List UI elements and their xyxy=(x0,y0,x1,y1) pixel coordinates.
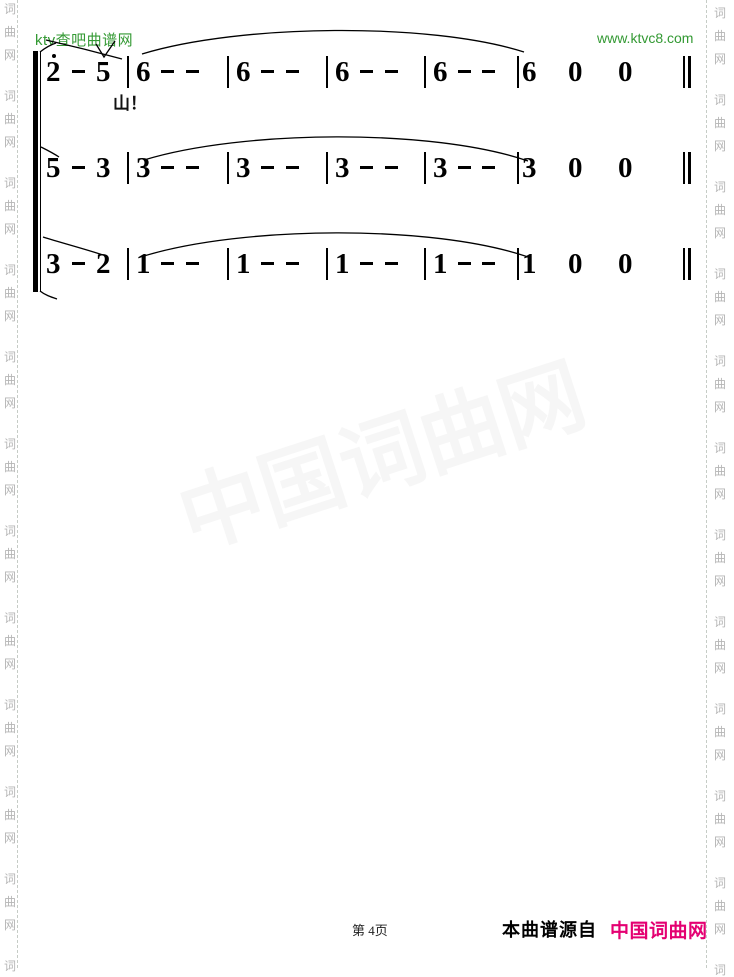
watermark-char: 曲 xyxy=(4,809,16,821)
duration-dash xyxy=(458,262,471,265)
watermark-char: 网 xyxy=(714,575,726,587)
watermark-char: 曲 xyxy=(4,374,16,386)
measure-barline xyxy=(127,152,129,184)
watermark-char: 网 xyxy=(4,310,16,322)
duration-dash xyxy=(186,262,199,265)
watermark-char: 词 xyxy=(714,181,726,193)
note-digit: 1 xyxy=(522,250,537,278)
page-number: 第 4页 xyxy=(352,920,388,939)
site-url-text: www.ktvc8.com xyxy=(597,30,693,46)
duration-dash xyxy=(385,262,398,265)
watermark-char: 词 xyxy=(714,703,726,715)
note-digit: 0 xyxy=(568,58,583,86)
measure-barline xyxy=(326,248,328,280)
watermark-char: 曲 xyxy=(714,117,726,129)
bracket-bottom-hook xyxy=(40,291,57,299)
duration-dash xyxy=(72,166,85,169)
duration-dash xyxy=(482,70,495,73)
watermark-char: 词 xyxy=(4,612,16,624)
measure-barline xyxy=(227,152,229,184)
duration-dash xyxy=(458,70,471,73)
note-digit: 6 xyxy=(335,58,350,86)
duration-dash xyxy=(360,70,373,73)
watermark-char: 曲 xyxy=(714,30,726,42)
watermark-char: 词 xyxy=(4,264,16,276)
watermark-char: 网 xyxy=(4,571,16,583)
watermark-char: 曲 xyxy=(714,204,726,216)
lyric-text: 山！ xyxy=(113,89,147,114)
measure-barline xyxy=(424,152,426,184)
note-digit: 3 xyxy=(433,154,448,182)
watermark-char: 词 xyxy=(714,268,726,280)
watermark-char: 词 xyxy=(714,529,726,541)
duration-dash xyxy=(286,166,299,169)
note-digit: 0 xyxy=(618,250,633,278)
measure-barline xyxy=(127,56,129,88)
watermark-char: 词 xyxy=(714,616,726,628)
note-digit: 0 xyxy=(568,250,583,278)
duration-dash xyxy=(286,262,299,265)
watermark-char: 网 xyxy=(4,397,16,409)
watermark-char: 曲 xyxy=(714,900,726,912)
duration-dash xyxy=(186,166,199,169)
right-watermark-column: 词曲网词曲网词曲网词曲网词曲网词曲网词曲网词曲网词曲网词曲网词曲网词 xyxy=(713,0,729,968)
watermark-char: 词 xyxy=(714,94,726,106)
note-digit: 2 xyxy=(46,58,61,86)
watermark-char: 曲 xyxy=(714,465,726,477)
system-thin-barline xyxy=(40,51,41,292)
watermark-char: 曲 xyxy=(4,896,16,908)
note-digit: 6 xyxy=(136,58,151,86)
measure-barline xyxy=(227,56,229,88)
watermark-char: 词 xyxy=(714,7,726,19)
watermark-char: 曲 xyxy=(4,461,16,473)
watermark-char: 网 xyxy=(714,662,726,674)
note-digit: 1 xyxy=(136,250,151,278)
watermark-char: 网 xyxy=(714,140,726,152)
system-thick-barline xyxy=(33,51,38,292)
watermark-char: 词 xyxy=(4,873,16,885)
left-dashed-rule xyxy=(17,0,18,968)
note-digit: 3 xyxy=(136,154,151,182)
note-digit: 6 xyxy=(236,58,251,86)
watermark-char: 曲 xyxy=(714,726,726,738)
watermark-char: 曲 xyxy=(714,813,726,825)
note-digit: 1 xyxy=(335,250,350,278)
watermark-char: 词 xyxy=(4,3,16,15)
duration-dash xyxy=(186,70,199,73)
watermark-char: 曲 xyxy=(714,639,726,651)
source-label: 本曲谱源自 xyxy=(502,916,597,942)
duration-dash xyxy=(161,166,174,169)
watermark-char: 词 xyxy=(714,355,726,367)
final-barline-thin xyxy=(683,56,685,88)
watermark-char: 曲 xyxy=(4,548,16,560)
ghost-watermark-text: 中国词曲网 xyxy=(162,328,599,573)
note-digit: 0 xyxy=(618,154,633,182)
watermark-char: 网 xyxy=(714,227,726,239)
watermark-char: 词 xyxy=(4,699,16,711)
final-barline-thin xyxy=(683,152,685,184)
watermark-char: 词 xyxy=(4,525,16,537)
duration-dash xyxy=(286,70,299,73)
watermark-char: 网 xyxy=(714,923,726,935)
watermark-char: 曲 xyxy=(714,378,726,390)
duration-dash xyxy=(261,70,274,73)
final-barline-thick xyxy=(688,248,691,280)
measure-barline xyxy=(424,248,426,280)
watermark-char: 网 xyxy=(714,401,726,413)
measure-barline xyxy=(326,152,328,184)
note-digit: 3 xyxy=(236,154,251,182)
note-digit: 5 xyxy=(96,58,111,86)
watermark-char: 曲 xyxy=(4,26,16,38)
watermark-char: 词 xyxy=(714,442,726,454)
measure-barline xyxy=(517,248,519,280)
watermark-char: 曲 xyxy=(714,291,726,303)
watermark-char: 网 xyxy=(4,484,16,496)
watermark-char: 词 xyxy=(4,438,16,450)
note-digit: 0 xyxy=(568,154,583,182)
duration-dash xyxy=(360,166,373,169)
watermark-char: 曲 xyxy=(714,552,726,564)
note-digit: 3 xyxy=(96,154,111,182)
note-digit: 6 xyxy=(433,58,448,86)
octave-dot xyxy=(52,54,56,58)
duration-dash xyxy=(72,262,85,265)
duration-dash xyxy=(385,166,398,169)
brand-link: 中国词曲网 xyxy=(610,916,708,943)
watermark-char: 网 xyxy=(4,919,16,931)
duration-dash xyxy=(161,262,174,265)
watermark-char: 曲 xyxy=(4,635,16,647)
watermark-char: 词 xyxy=(4,786,16,798)
watermark-char: 网 xyxy=(4,745,16,757)
right-dashed-rule xyxy=(706,0,707,968)
measure-barline xyxy=(127,248,129,280)
watermark-char: 词 xyxy=(4,90,16,102)
final-barline-thick xyxy=(688,56,691,88)
watermark-char: 网 xyxy=(714,749,726,761)
note-digit: 0 xyxy=(618,58,633,86)
duration-dash xyxy=(261,262,274,265)
measure-barline xyxy=(424,56,426,88)
duration-dash xyxy=(261,166,274,169)
measure-barline xyxy=(326,56,328,88)
duration-dash xyxy=(385,70,398,73)
note-digit: 2 xyxy=(96,250,111,278)
watermark-char: 曲 xyxy=(4,200,16,212)
measure-barline xyxy=(517,56,519,88)
watermark-char: 曲 xyxy=(4,287,16,299)
duration-dash xyxy=(360,262,373,265)
watermark-char: 词 xyxy=(714,877,726,889)
watermark-char: 网 xyxy=(714,314,726,326)
watermark-char: 网 xyxy=(4,49,16,61)
note-digit: 3 xyxy=(522,154,537,182)
watermark-char: 网 xyxy=(714,53,726,65)
note-digit: 1 xyxy=(236,250,251,278)
slur-line1 xyxy=(142,30,524,54)
note-digit: 6 xyxy=(522,58,537,86)
measure-barline xyxy=(517,152,519,184)
watermark-char: 词 xyxy=(4,351,16,363)
duration-dash xyxy=(161,70,174,73)
watermark-char: 网 xyxy=(4,223,16,235)
watermark-char: 曲 xyxy=(4,722,16,734)
site-name-text: ktv查吧曲谱网 xyxy=(35,29,133,50)
note-digit: 3 xyxy=(335,154,350,182)
measure-barline xyxy=(227,248,229,280)
watermark-char: 词 xyxy=(714,790,726,802)
final-barline-thin xyxy=(683,248,685,280)
note-digit: 5 xyxy=(46,154,61,182)
duration-dash xyxy=(482,262,495,265)
watermark-char: 网 xyxy=(4,832,16,844)
watermark-char: 曲 xyxy=(4,113,16,125)
watermark-char: 网 xyxy=(714,836,726,848)
watermark-char: 词 xyxy=(4,177,16,189)
note-digit: 3 xyxy=(46,250,61,278)
duration-dash xyxy=(72,70,85,73)
watermark-char: 网 xyxy=(4,136,16,148)
watermark-char: 词 xyxy=(714,964,726,976)
note-digit: 1 xyxy=(433,250,448,278)
duration-dash xyxy=(458,166,471,169)
watermark-char: 词 xyxy=(4,960,16,972)
final-barline-thick xyxy=(688,152,691,184)
watermark-char: 网 xyxy=(4,658,16,670)
duration-dash xyxy=(482,166,495,169)
watermark-char: 网 xyxy=(714,488,726,500)
score-page: { "header": { "site_name": "ktv查吧曲谱网", "… xyxy=(0,0,734,968)
